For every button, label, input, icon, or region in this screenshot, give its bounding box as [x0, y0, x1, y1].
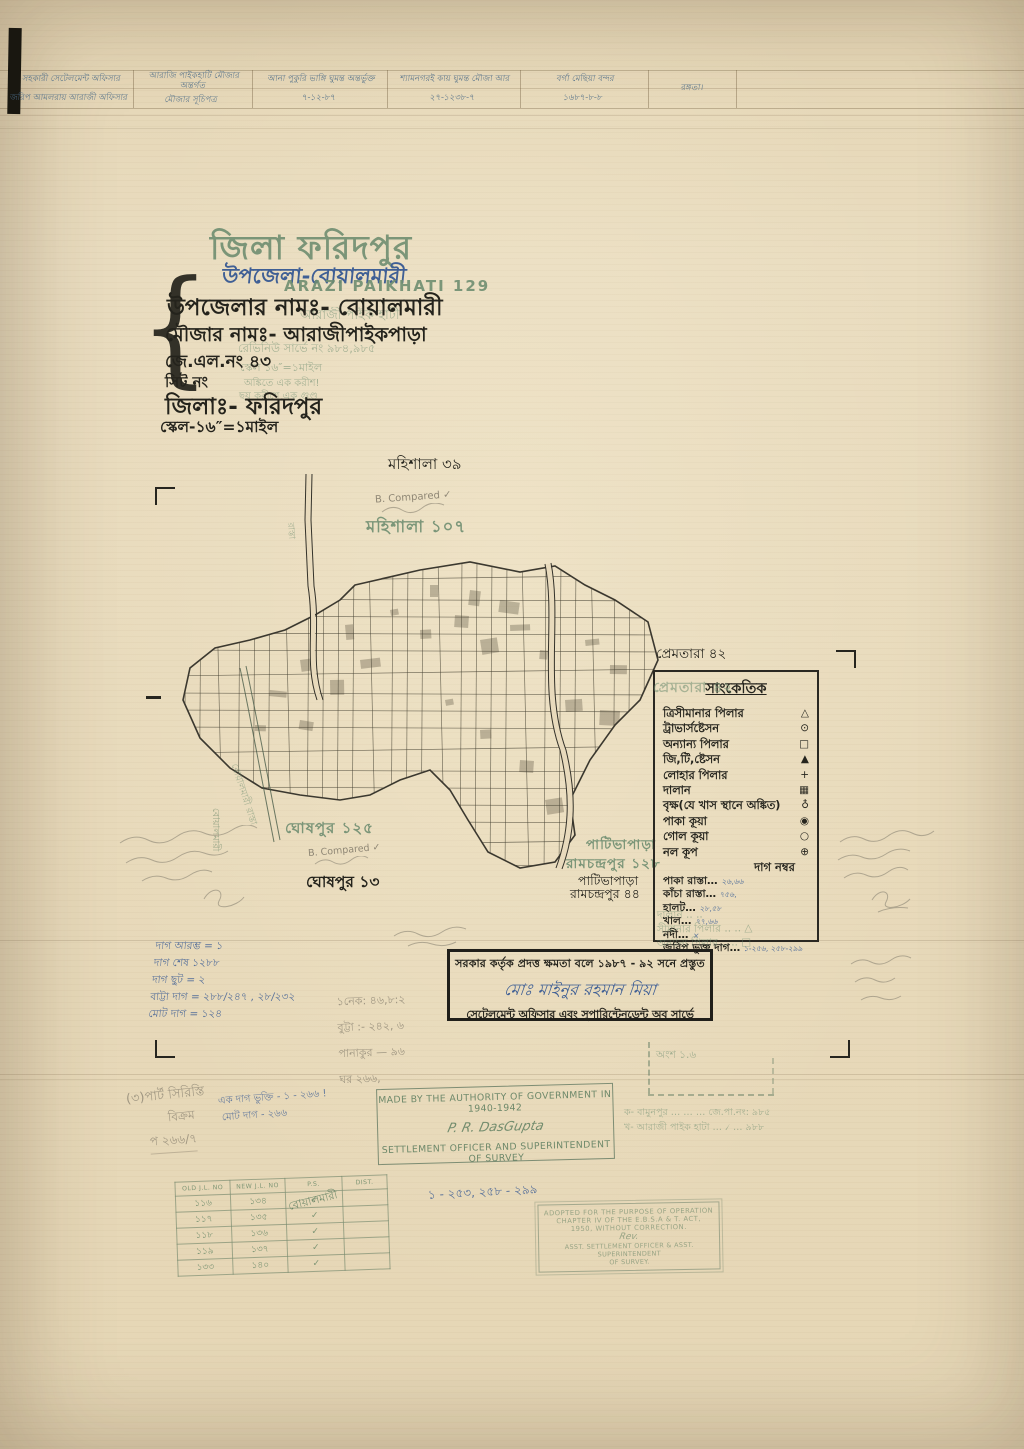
- new-jl-cell: ১৩৭: [232, 1240, 288, 1258]
- jl-conversion-table: OLD J.L. NO NEW J.L. NO P.S. DIST. ১১৬১৩…: [176, 1178, 389, 1273]
- village-label-mahishala-107: মহিশালা ১০৭: [366, 514, 466, 541]
- paved-well-icon: ◉: [800, 814, 809, 829]
- new-jl-cell: ১৩৪: [230, 1192, 286, 1210]
- plot-range-note: ১ - ২৫৩, ২৫৮ - ২৯৯: [428, 1181, 538, 1207]
- new-jl-cell: ১৩৬: [231, 1224, 287, 1242]
- rule-line: [0, 940, 1024, 941]
- dist-cell: [343, 1205, 389, 1223]
- corner-mark: [836, 650, 856, 668]
- legend-item: নল কূপ⊕: [663, 845, 809, 860]
- header-cell: রঙ্গতা।: [647, 70, 736, 108]
- header-cell-text: ২৭-১২৩৮-৭: [388, 94, 516, 103]
- legend-item: পাকা কূয়া◉: [663, 814, 809, 829]
- legend-item: ট্রাভার্সষ্টেসন⊙: [663, 721, 809, 736]
- adopted-stamp-box: ADOPTED FOR THE PURPOSE OF OPERATION CHA…: [537, 1201, 720, 1272]
- authorization-line2: সেটেলমেন্ট অফিসার এবং সুপারিন্টেনডেন্ট অ…: [450, 1006, 710, 1025]
- authorization-line1: সরকার কর্তৃক প্রদত্ত ক্ষমতা বলে ১৯৮৭ - ৯…: [450, 955, 710, 974]
- header-cell-text: আনা পুকুরি ভাঙ্গি ঘুমন্ত অন্তর্ভুক্ত: [257, 75, 386, 84]
- legend-item-label: অন্যান্য পিলার: [663, 737, 729, 752]
- corner-mark: [155, 1040, 175, 1058]
- legend-item-label: গোল কূয়া: [663, 829, 708, 844]
- village-label-prematara-42: প্রেমতারা ৪২: [656, 643, 726, 666]
- legend-item: ত্রিসীমানার পিলার△: [663, 706, 809, 721]
- legend-item: জি,টি,ষ্টেসন▲: [663, 752, 809, 767]
- building-icon: ▦: [799, 783, 809, 798]
- pencil-signature-scribble: [312, 856, 372, 868]
- village-label-ghoshpur-13: ঘোষপুর ১৩: [306, 870, 379, 896]
- boundary-pillar-icon: △: [801, 706, 809, 721]
- rule-line: [0, 128, 1024, 129]
- rule-line: [0, 1079, 1024, 1080]
- note-line: ঘর ২৬৬,: [339, 1065, 409, 1093]
- header-cell: শ্যামনগরই কায় ঘুমন্ত মৌজা আর ২৭-১২৩৮-৭: [387, 70, 519, 108]
- plot-number-heading: দাগ নম্বর: [663, 860, 809, 875]
- rule-line: [0, 115, 1024, 116]
- rule-line: [0, 108, 1024, 109]
- superintendent-signature: P. R. DasGupta: [376, 1117, 614, 1138]
- note-line: ১নেক: ৪৬,৮:২: [336, 987, 406, 1015]
- header-cell: সহকারী সেটেলমেন্ট অফিসার জরিপ আমলরায় আর…: [7, 70, 132, 108]
- note-line: দাগ আরম্ভ = ১: [155, 938, 302, 955]
- note-line: মোট দাগ = ১২৪: [148, 1006, 295, 1023]
- pencil-notes: ১নেক: ৪৬,৮:২ বুট্টা :- ২৪২, ৬ পানাকুর — …: [336, 987, 408, 1093]
- scanned-cadastral-map-sheet: সহকারী সেটেলমেন্ট অফিসার জরিপ আমলরায় আর…: [0, 0, 1024, 1449]
- authorization-stamp-box: সরকার কর্তৃক প্রদত্ত ক্ষমতা বলে ১৯৮৭ - ৯…: [447, 949, 713, 1021]
- old-jl-cell: ১১৭: [176, 1210, 232, 1228]
- header-cell: আনা পুকুরি ভাঙ্গি ঘুমন্ত অন্তর্ভুক্ত ৭-১…: [253, 70, 386, 108]
- legend-item: অন্যান্য পিলার□: [663, 737, 809, 752]
- corner-mark: [830, 1040, 850, 1058]
- header-cell: বর্গা মেছিয়া বন্দর ১৬৮৭-৮-৮: [520, 70, 647, 108]
- pencil-scribble-right: [834, 828, 969, 920]
- part-box-edge: [648, 1042, 652, 1094]
- part-label: অংশ ১.৬: [656, 1048, 696, 1065]
- note-line: দাগ ছুট = ২: [151, 972, 298, 989]
- header-cell-text: আরাজি পাইকহাটি মৌজার অন্তর্গত: [136, 72, 252, 91]
- new-jl-cell: ১৪০: [233, 1256, 289, 1274]
- legend-item-label: বৃক্ষ(যে খাস স্থানে অঙ্কিত): [663, 798, 780, 813]
- note-line: পানাকুর — ৯৬: [338, 1039, 408, 1067]
- header-cell-text: জরিপ আমলরায় আরাজী অফিসার: [8, 94, 129, 103]
- legend-dag-item: কাঁচা রাস্তা…৭৫৬,: [663, 888, 809, 901]
- legend-item: বৃক্ষ(যে খাস স্থানে অঙ্কিত)♁: [663, 798, 809, 813]
- traverse-station-icon: ⊙: [800, 721, 809, 736]
- legend-item: দালান▦: [663, 783, 809, 798]
- made-by-line1: MADE BY THE AUTHORITY OF GOVERNMENT IN 1…: [377, 1089, 612, 1117]
- dist-cell: [345, 1253, 391, 1271]
- tube-well-icon: ⊕: [800, 845, 809, 860]
- adopted-line5: OF SURVEY.: [539, 1256, 719, 1267]
- legend-dag-item: পাকা রাস্তা…২৬,৬৬: [663, 875, 809, 888]
- pencil-scribble-left: [112, 825, 277, 915]
- village-label-mahishala-39: মহিশালা ৩৯: [388, 453, 462, 478]
- gt-station-icon: ▲: [801, 752, 809, 767]
- scale-line: স্কেল-১৬″=১মাইল: [160, 415, 278, 441]
- rule-line: [0, 1074, 1024, 1075]
- legend-item: লোহার পিলার+: [663, 768, 809, 783]
- header-cell-text: ১৬৮৭-৮-৮: [521, 94, 644, 103]
- old-jl-cell: ১৩৩: [178, 1258, 234, 1276]
- legend-item-label: দালান: [663, 783, 691, 798]
- pencil-scribble-right-lower: [845, 952, 945, 1020]
- note-line: মোট দাগ - ২৬৬: [221, 1106, 287, 1128]
- old-jl-cell: ১১৮: [177, 1226, 233, 1244]
- note-line: বুট্টা :- ২৪২, ৬: [337, 1013, 407, 1041]
- round-well-icon: ○: [800, 829, 809, 844]
- legend-item-label: জি,টি,ষ্টেসন: [663, 752, 720, 767]
- header-cell-text: ৭-১২-৮৭: [254, 94, 383, 103]
- dist-cell: [344, 1237, 390, 1255]
- settlement-officer-signature: মোঃ মাইনুর রহমান মিয়া: [449, 977, 712, 1004]
- header-cell-text: বর্গা মেছিয়া বন্দর: [524, 75, 647, 84]
- part-note: প ২৬৬/৭: [149, 1130, 198, 1154]
- check-cell: ✓: [288, 1254, 346, 1272]
- made-by-stamp-box: MADE BY THE AUTHORITY OF GOVERNMENT IN 1…: [376, 1083, 615, 1165]
- legend-item-label: নল কূপ: [663, 845, 698, 860]
- dist-cell: [343, 1221, 389, 1239]
- part-box-edge: [648, 1092, 774, 1096]
- iron-pillar-icon: +: [800, 768, 809, 783]
- note-line: বাট্টা দাগ = ২৮৮/২৪৭ , ২৮/২৩২: [149, 989, 296, 1006]
- made-by-line2: SETTLEMENT OFFICER AND SUPERINTENDENT OF…: [379, 1139, 614, 1167]
- village-label-ghoshpur-125: ঘোষপুর ১২৫: [285, 817, 374, 842]
- legend-item-label: ট্রাভার্সষ্টেসন: [663, 721, 719, 736]
- header-cell-text: রঙ্গতা।: [649, 84, 734, 93]
- dist-cell: [342, 1189, 388, 1207]
- dag-item-label: পাকা রাস্তা…: [663, 875, 718, 888]
- header-cell-text: মৌজার সূচিপত্র: [134, 96, 248, 105]
- road-label-top: রাস্তা: [283, 522, 299, 540]
- header-divider: [252, 70, 253, 108]
- reference-line-b: খ- আরাজী পাইক হাটা … ৴ … ৯৮৮: [624, 1121, 764, 1136]
- legend-box: প্রেমতারা ৪২ সাংকেতিক ত্রিসীমানার পিলার△…: [653, 670, 819, 942]
- header-divider: [736, 70, 737, 108]
- dag-item-value: ১-২৫৬, ২৫৮-২৯৯: [743, 942, 804, 955]
- legend-item: গোল কূয়া○: [663, 829, 809, 844]
- other-pillar-icon: □: [799, 737, 809, 752]
- legend-item-label: পাকা কূয়া: [663, 814, 707, 829]
- legend-item-label: লোহার পিলার: [663, 768, 727, 783]
- dag-item-label: কাঁচা রাস্তা…: [663, 888, 716, 901]
- note-line: দাগ শেষ ১২৮৮: [153, 955, 300, 972]
- ghost-prematara-stamp: প্রেমতারা ৪২: [653, 676, 733, 700]
- header-cell: আরাজি পাইকহাটি মৌজার অন্তর্গত মৌজার সূচি…: [133, 70, 251, 108]
- pencil-scribble-center: [388, 924, 498, 950]
- reference-line-a: ক- বামুনপুর … … … জে.পা.নং: ৯৮৫: [624, 1106, 770, 1121]
- dag-item-value: ৭৫৬,: [719, 888, 738, 901]
- old-jl-cell: ১১৬: [175, 1194, 231, 1212]
- village-label-ramchandrapur-44: রামচন্দ্রপুর ৪৪: [570, 886, 640, 906]
- new-jl-cell: ১৩৫: [231, 1208, 287, 1226]
- header-cell-text: সহকারী সেটেলমেন্ট অফিসার: [11, 75, 132, 84]
- part-note: বিক্রম: [167, 1107, 196, 1130]
- dag-item-value: ২৬,৬৬: [721, 875, 745, 888]
- part-box-edge: [772, 1058, 776, 1094]
- legend-item-label: ত্রিসীমানার পিলার: [663, 706, 744, 721]
- header-cell-text: শ্যামনগরই কায় ঘুমন্ত মৌজা আর: [391, 75, 519, 84]
- old-jl-cell: ১১৯: [177, 1242, 233, 1260]
- plot-statistics-notes: দাগ আরম্ভ = ১ দাগ শেষ ১২৮৮ দাগ ছুট = ২ ব…: [148, 938, 302, 1023]
- tree-icon: ♁: [801, 798, 809, 813]
